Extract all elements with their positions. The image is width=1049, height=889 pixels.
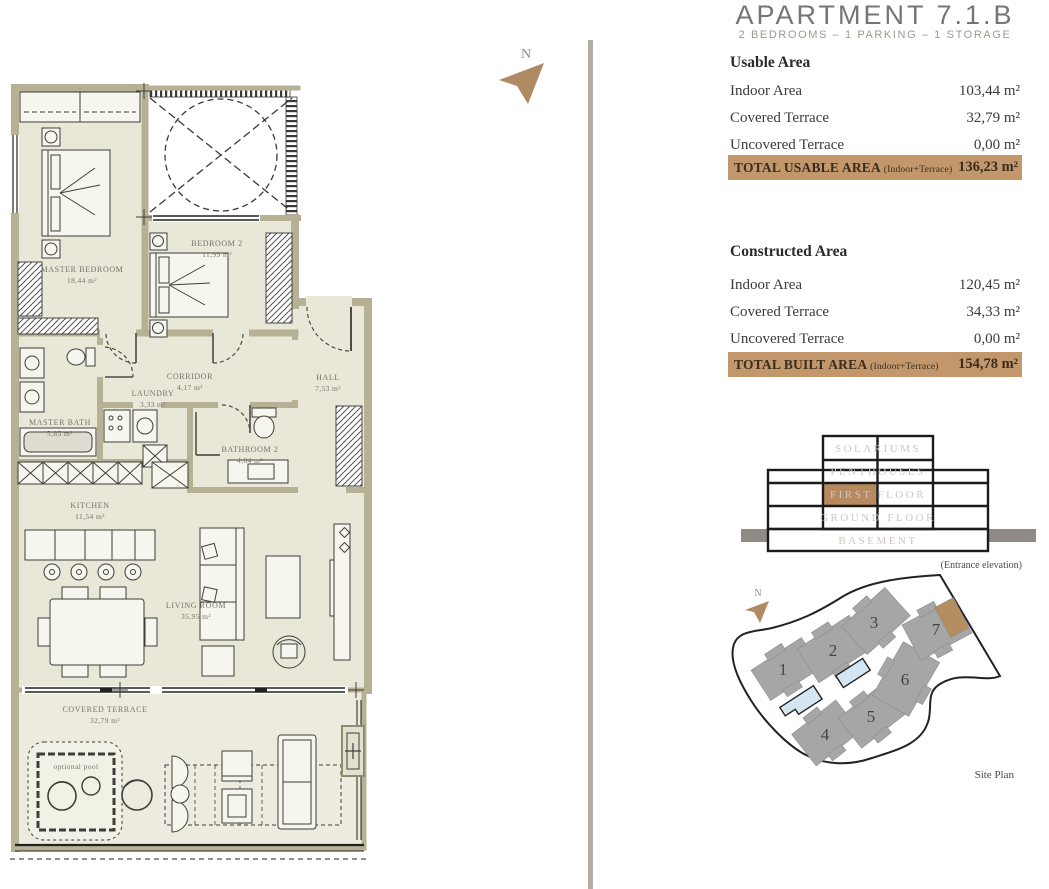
usable-row-indoor: Indoor Area 103,44 m² (730, 78, 1020, 105)
total-built-label: TOTAL BUILT AREA (Indoor+Terrace) (734, 357, 939, 373)
room-area-bedroom2: 11,99 m² (202, 250, 232, 259)
total-built-value: 154,78 m² (958, 356, 1018, 373)
constructed-row-indoor-value: 120,45 m² (959, 277, 1020, 294)
usable-row-indoor-label: Indoor Area (730, 83, 802, 100)
room-label-kitchen: KITCHEN (70, 501, 109, 510)
room-label-corridor: CORRIDOR (167, 372, 213, 381)
site-plan-label: Site Plan (975, 769, 1015, 781)
building-num-2: 2 (829, 641, 838, 660)
usable-area-heading: Usable Area (730, 54, 810, 72)
usable-area-rows: Indoor Area 103,44 m² Covered Terrace 32… (730, 78, 1020, 159)
room-label-covered-terrace: COVERED TERRACE (62, 705, 147, 714)
room-area-hall: 7,53 m² (315, 384, 341, 393)
room-label-master-bedroom: MASTER BEDROOM (41, 265, 124, 274)
usable-row-indoor-value: 103,44 m² (959, 83, 1020, 100)
pool-label: optional pool (54, 762, 99, 771)
usable-row-covered-value: 32,79 m² (966, 110, 1020, 127)
elevation-floor-first-floor: FIRST FLOOR (830, 489, 926, 501)
total-built-note: (Indoor+Terrace) (870, 362, 939, 372)
total-usable-value: 136,23 m² (958, 159, 1018, 176)
room-area-kitchen: 11,54 m² (75, 512, 105, 521)
constructed-row-indoor-label: Indoor Area (730, 277, 802, 294)
usable-row-covered-label: Covered Terrace (730, 110, 829, 127)
elevation-diagram: SOLARIUMS PENTHOUSES FIRST FLOOR GROUND … (741, 436, 1036, 571)
room-area-laundry: 3,33 m² (140, 400, 166, 409)
elevation-floor-basement: BASEMENT (838, 535, 917, 547)
master-wardrobe (20, 92, 140, 122)
dining-set (38, 587, 157, 677)
site-north-arrow-icon: N (745, 588, 769, 623)
north-arrow-icon: N (499, 47, 544, 104)
usable-row-uncovered-value: 0,00 m² (974, 137, 1020, 154)
building-num-7: 7 (932, 620, 941, 639)
total-built-label-text: TOTAL BUILT AREA (734, 357, 867, 372)
total-usable-bar: TOTAL USABLE AREA (Indoor+Terrace) 136,2… (728, 155, 1022, 180)
building-num-1: 1 (779, 660, 788, 679)
elevation-floor-ground-floor: GROUND FLOOR (820, 512, 936, 524)
usable-row-uncovered-label: Uncovered Terrace (730, 137, 844, 154)
room-label-hall: HALL (316, 373, 340, 382)
room-label-bedroom2: BEDROOM 2 (191, 239, 242, 248)
constructed-area-heading: Constructed Area (730, 243, 847, 261)
constructed-row-covered-label: Covered Terrace (730, 304, 829, 321)
building-num-6: 6 (901, 670, 910, 689)
room-label-master-bath: MASTER BATH (29, 418, 91, 427)
total-built-bar: TOTAL BUILT AREA (Indoor+Terrace) 154,78… (728, 352, 1022, 377)
room-label-laundry: LAUNDRY (132, 389, 175, 398)
total-usable-label: TOTAL USABLE AREA (Indoor+Terrace) (734, 160, 952, 176)
total-usable-label-text: TOTAL USABLE AREA (734, 160, 880, 175)
north-label: N (521, 47, 531, 62)
room-label-living-room: LIVING ROOM (166, 601, 226, 610)
building-num-3: 3 (870, 613, 879, 632)
vertical-divider (588, 40, 593, 889)
room-area-master-bath: 5,85 m² (47, 429, 73, 438)
room-area-corridor: 4,17 m² (177, 383, 203, 392)
kitchen-cabinets (18, 462, 188, 488)
constructed-row-uncovered-label: Uncovered Terrace (730, 331, 844, 348)
room-area-living-room: 35,95 m² (181, 612, 211, 621)
info-panel: APARTMENT 7.1.B 2 BEDROOMS – 1 PARKING –… (728, 0, 1022, 440)
constructed-row-covered-value: 34,33 m² (966, 304, 1020, 321)
constructed-row-uncovered-value: 0,00 m² (974, 331, 1020, 348)
room-area-master-bedroom: 18,44 m² (67, 276, 97, 285)
floor-plan: MASTER BEDROOM 18,44 m² BEDROOM 2 11,99 … (10, 47, 544, 859)
elevation-floor-solariums: SOLARIUMS (835, 443, 921, 455)
constructed-row-indoor: Indoor Area 120,45 m² (730, 272, 1020, 299)
site-north-label: N (754, 588, 761, 599)
usable-row-covered: Covered Terrace 32,79 m² (730, 105, 1020, 132)
total-usable-note: (Indoor+Terrace) (884, 165, 953, 175)
room-area-covered-terrace: 32,79 m² (90, 716, 120, 725)
room-area-bathroom2: 4,64 m² (237, 456, 263, 465)
elevation-floor-penthouses: PENTHOUSES (830, 466, 925, 478)
building-num-4: 4 (821, 725, 830, 744)
building-num-5: 5 (867, 707, 876, 726)
constructed-row-uncovered: Uncovered Terrace 0,00 m² (730, 326, 1020, 353)
page-title: APARTMENT 7.1.B (718, 0, 1032, 31)
constructed-area-rows: Indoor Area 120,45 m² Covered Terrace 34… (730, 272, 1020, 353)
apartment-sheet: { "header": { "title": "APARTMENT 7.1.B"… (0, 0, 1049, 889)
constructed-row-covered: Covered Terrace 34,33 m² (730, 299, 1020, 326)
page-subtitle: 2 BEDROOMS – 1 PARKING – 1 STORAGE (728, 29, 1022, 41)
elevation-caption: (Entrance elevation) (941, 560, 1022, 571)
site-plan: N 1 2 3 4 5 6 7 Site Plan (732, 575, 1014, 781)
room-label-bathroom2: BATHROOM 2 (222, 445, 279, 454)
